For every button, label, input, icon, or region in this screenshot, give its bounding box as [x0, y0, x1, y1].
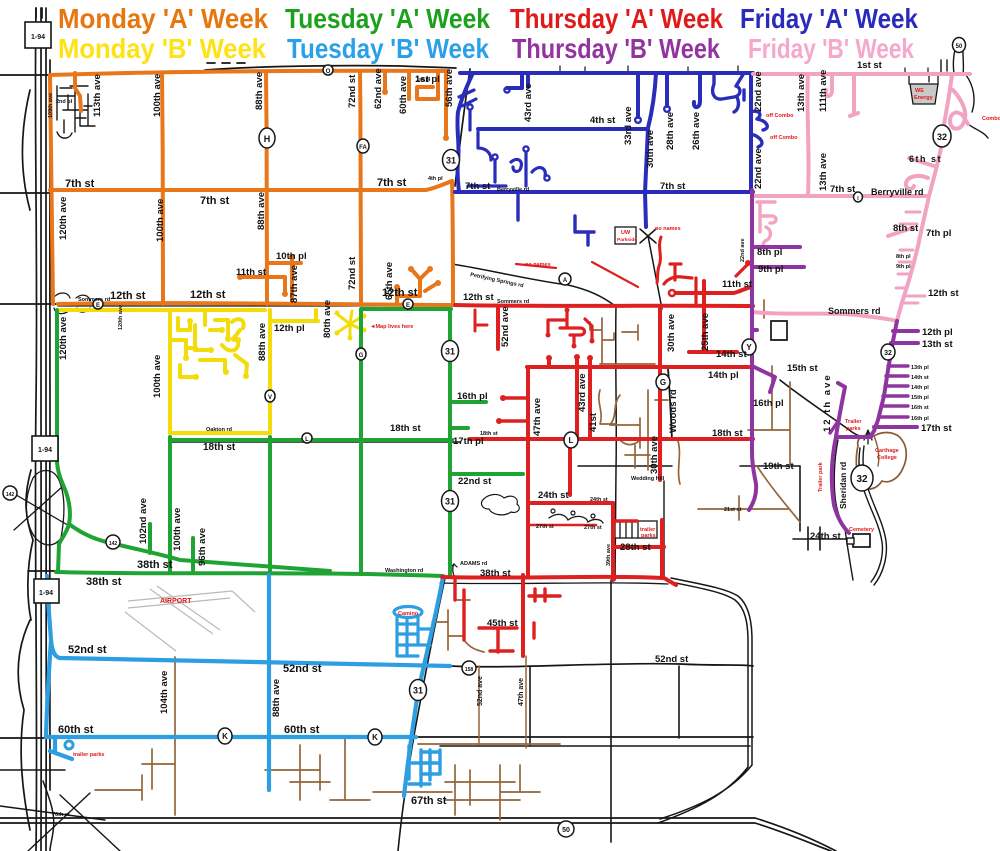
svg-text:12th st: 12th st [928, 288, 959, 299]
svg-text:100th ave: 100th ave [172, 508, 183, 551]
svg-text:47th ave: 47th ave [532, 398, 543, 436]
svg-text:24th st: 24th st [810, 531, 841, 542]
svg-text:19th st: 19th st [763, 461, 794, 472]
svg-text:39th ave: 39th ave [606, 544, 612, 566]
svg-text:no names: no names [525, 262, 551, 268]
svg-text:1st st: 1st st [857, 60, 883, 71]
svg-text:off Combo: off Combo [766, 113, 794, 119]
svg-text:120th ave: 120th ave [118, 305, 124, 330]
svg-text:142: 142 [6, 492, 15, 498]
svg-text:K: K [372, 733, 378, 742]
svg-text:Friday 'B' Week: Friday 'B' Week [748, 33, 914, 64]
svg-text:88th ave: 88th ave [254, 72, 265, 110]
svg-text:67th st: 67th st [411, 795, 447, 807]
svg-text:102nd ave: 102nd ave [138, 498, 149, 544]
svg-text:1st pl: 1st pl [416, 77, 431, 83]
svg-text:100th ave: 100th ave [152, 74, 163, 117]
svg-text:18th st: 18th st [203, 442, 236, 453]
svg-text:WE: WE [915, 88, 924, 94]
svg-text:Energy: Energy [914, 95, 934, 101]
svg-text:38th st: 38th st [137, 559, 173, 571]
svg-text:47th ave: 47th ave [518, 678, 525, 706]
svg-text:104th ave: 104th ave [159, 671, 170, 714]
svg-text:32: 32 [856, 474, 868, 485]
svg-text:13th st: 13th st [922, 339, 953, 350]
svg-text:Berryville rd: Berryville rd [871, 187, 924, 197]
svg-text:12th pl: 12th pl [274, 323, 305, 334]
svg-text:12th st: 12th st [110, 290, 146, 302]
svg-text:56th ave: 56th ave [444, 69, 455, 107]
svg-text:parks: parks [641, 533, 656, 539]
svg-text:72nd st: 72nd st [347, 256, 358, 290]
svg-text:Sommers rd: Sommers rd [828, 306, 881, 316]
svg-text:32: 32 [884, 350, 892, 357]
svg-text:Monday 'B' Week: Monday 'B' Week [58, 33, 266, 64]
svg-text:1-94: 1-94 [31, 34, 45, 41]
svg-text:2nd pl: 2nd pl [56, 99, 73, 105]
svg-text:Washington rd: Washington rd [385, 568, 423, 574]
svg-text:E: E [406, 303, 410, 309]
svg-text:L: L [305, 437, 309, 443]
svg-text:ADAMS rd: ADAMS rd [460, 561, 487, 567]
svg-text:Thursday 'B' Week: Thursday 'B' Week [512, 33, 720, 64]
svg-text:11th st: 11th st [722, 279, 753, 290]
svg-text:120th ave: 120th ave [58, 317, 69, 360]
svg-text:100th ave: 100th ave [155, 199, 166, 242]
svg-text:Oakton rd: Oakton rd [206, 427, 232, 433]
svg-text:52nd st: 52nd st [655, 654, 689, 665]
svg-text:K: K [222, 732, 228, 741]
svg-text:60th st: 60th st [58, 724, 94, 736]
svg-text:8th pl: 8th pl [757, 247, 782, 258]
svg-text:88th ave: 88th ave [257, 323, 268, 361]
svg-text:8th pl: 8th pl [896, 254, 911, 260]
svg-text:15th st: 15th st [787, 363, 818, 374]
svg-text:Sommers rd: Sommers rd [78, 297, 110, 303]
svg-text:22nd st: 22nd st [458, 476, 492, 487]
svg-text:113th ave: 113th ave [92, 74, 103, 117]
svg-text:120th ave: 120th ave [58, 197, 69, 240]
svg-text:88th ave: 88th ave [271, 679, 282, 717]
svg-text:96th ave: 96th ave [197, 528, 208, 566]
svg-text:Parkside: Parkside [617, 237, 637, 243]
svg-text:52nd ave: 52nd ave [477, 676, 484, 706]
svg-text:43rd ave: 43rd ave [523, 83, 534, 122]
svg-text:14th pl: 14th pl [708, 370, 739, 381]
svg-text:6th st: 6th st [909, 154, 942, 164]
svg-text:76th st: 76th st [52, 812, 70, 818]
svg-text:Tuesday 'B' Week: Tuesday 'B' Week [287, 33, 489, 64]
svg-text:28th st: 28th st [620, 542, 651, 553]
svg-text:158: 158 [465, 667, 474, 673]
svg-text:Camino: Camino [398, 611, 419, 617]
svg-text:16th pl: 16th pl [911, 416, 929, 422]
svg-text:4th pl: 4th pl [428, 176, 443, 182]
svg-text:43rd ave: 43rd ave [577, 373, 588, 412]
svg-text:7th st: 7th st [65, 178, 95, 190]
svg-text:7th st: 7th st [830, 184, 856, 195]
svg-text:18th st: 18th st [480, 431, 498, 437]
svg-text:17th st: 17th st [921, 423, 952, 434]
svg-text:52nd ave: 52nd ave [500, 306, 511, 347]
svg-text:G: G [359, 353, 364, 359]
svg-text:52nd st: 52nd st [68, 644, 107, 656]
svg-text:28th ave: 28th ave [665, 112, 676, 150]
svg-text:50: 50 [562, 827, 570, 834]
svg-text:17th pl: 17th pl [453, 436, 484, 447]
svg-text:33rd ave: 33rd ave [623, 106, 634, 145]
svg-text:26th ave: 26th ave [691, 112, 702, 150]
svg-text:31: 31 [445, 347, 455, 357]
svg-text:30th ave: 30th ave [666, 314, 677, 352]
svg-text:80th ave: 80th ave [322, 300, 333, 338]
svg-text:parks: parks [846, 426, 861, 432]
svg-text:12th st: 12th st [190, 289, 226, 301]
svg-text:72nd st: 72nd st [347, 74, 358, 108]
svg-text:no names: no names [655, 226, 681, 232]
svg-text:trailer parks: trailer parks [73, 752, 105, 758]
svg-text:9th pl: 9th pl [758, 264, 783, 275]
svg-text:A: A [563, 278, 568, 284]
svg-text:Thursday 'A' Week: Thursday 'A' Week [510, 3, 723, 34]
svg-text:38th st: 38th st [480, 568, 511, 579]
svg-text:O: O [326, 69, 331, 75]
svg-text:100th ave: 100th ave [152, 355, 163, 398]
svg-text:Tuesday 'A' Week: Tuesday 'A' Week [285, 3, 490, 34]
svg-text:16th pl: 16th pl [753, 398, 784, 409]
svg-text:62nd ave: 62nd ave [373, 68, 384, 109]
svg-text:24th st: 24th st [590, 497, 608, 503]
svg-text:16th pl: 16th pl [457, 391, 488, 402]
svg-text:Friday 'A' Week: Friday 'A' Week [740, 3, 918, 34]
svg-text:7th st: 7th st [200, 195, 230, 207]
svg-text:25th ave: 25th ave [700, 313, 711, 351]
svg-text:12th st: 12th st [463, 292, 494, 303]
svg-text:22nd ave: 22nd ave [740, 238, 746, 262]
svg-text:Woods rd: Woods rd [668, 389, 679, 433]
svg-text:12th pl: 12th pl [922, 327, 953, 338]
svg-text:142: 142 [109, 541, 118, 547]
svg-text:Monday 'A' Week: Monday 'A' Week [58, 3, 268, 34]
svg-text:24th st: 24th st [538, 490, 569, 501]
svg-text:Sommers rd: Sommers rd [497, 299, 529, 305]
svg-text:22nd ave: 22nd ave [753, 148, 764, 189]
svg-text:10th pl: 10th pl [276, 251, 307, 262]
svg-text:14th pl: 14th pl [911, 385, 929, 391]
svg-text:11th st: 11th st [236, 267, 267, 278]
svg-text:7th st: 7th st [377, 177, 407, 189]
svg-text:7th st: 7th st [660, 181, 686, 192]
svg-text:60th st: 60th st [284, 724, 320, 736]
svg-text:13th ave: 13th ave [796, 74, 807, 112]
svg-text:15th pl: 15th pl [911, 395, 929, 401]
svg-text:60th ave: 60th ave [398, 76, 409, 114]
svg-text:21st st: 21st st [724, 507, 742, 513]
svg-text:87th ave: 87th ave [289, 265, 300, 303]
svg-text:31: 31 [446, 156, 456, 166]
svg-text:32: 32 [937, 132, 947, 142]
svg-text:Y: Y [746, 343, 752, 352]
svg-text:65th ave: 65th ave [384, 262, 395, 300]
svg-text:13th pl: 13th pl [911, 365, 929, 371]
svg-text:7th st: 7th st [465, 181, 491, 192]
svg-text:AIRPORT: AIRPORT [160, 598, 192, 605]
svg-text:FA: FA [359, 145, 367, 151]
svg-text:Wedding Hill: Wedding Hill [631, 476, 665, 482]
svg-text:1-94: 1-94 [39, 590, 53, 597]
svg-text:18th st: 18th st [712, 428, 743, 439]
svg-text:Cemetery: Cemetery [849, 527, 875, 533]
svg-text:38th st: 38th st [86, 576, 122, 588]
svg-text:7th pl: 7th pl [926, 228, 951, 239]
svg-text:◄Map lives here: ◄Map lives here [370, 324, 413, 330]
svg-text:12 th ave: 12 th ave [822, 373, 833, 432]
svg-text:H: H [264, 134, 271, 144]
svg-text:9th pl: 9th pl [896, 264, 911, 270]
svg-text:50: 50 [956, 44, 963, 50]
svg-text:UW: UW [621, 230, 631, 236]
svg-text:88th ave: 88th ave [256, 192, 267, 230]
svg-text:30th ave: 30th ave [649, 436, 660, 474]
svg-text:22nd ave: 22nd ave [753, 71, 764, 112]
svg-text:52nd st: 52nd st [283, 663, 322, 675]
svg-text:Trailer: Trailer [845, 419, 862, 425]
svg-text:Berryville rd: Berryville rd [497, 187, 529, 193]
svg-text:13th ave: 13th ave [818, 153, 829, 191]
svg-text:41st: 41st [588, 412, 599, 432]
svg-text:Carthage: Carthage [875, 448, 899, 454]
svg-text:45th st: 45th st [487, 618, 518, 629]
svg-text:College: College [877, 455, 897, 461]
svg-text:4th st: 4th st [590, 115, 616, 126]
svg-text:G: G [660, 378, 666, 387]
svg-text:111th ave: 111th ave [818, 70, 829, 112]
svg-text:27th st: 27th st [536, 524, 554, 530]
svg-text:Combo: Combo [982, 116, 1000, 122]
svg-text:off Combo: off Combo [770, 135, 798, 141]
svg-text:14th st: 14th st [911, 375, 929, 381]
svg-text:16th st: 16th st [911, 405, 929, 411]
svg-text:27th st: 27th st [584, 525, 602, 531]
svg-text:31: 31 [413, 686, 423, 696]
svg-text:V: V [268, 395, 272, 401]
svg-text:Trailer park: Trailer park [818, 461, 824, 492]
svg-text:31: 31 [445, 497, 455, 507]
svg-text:Sheridan rd: Sheridan rd [838, 462, 848, 509]
svg-text:L: L [569, 436, 574, 445]
svg-text:14th st: 14th st [716, 349, 747, 360]
svg-text:E: E [96, 303, 100, 309]
svg-text:1-94: 1-94 [38, 447, 52, 454]
svg-text:109th ave: 109th ave [48, 93, 54, 118]
svg-text:18th st: 18th st [390, 423, 421, 434]
svg-text:8th st: 8th st [893, 223, 919, 234]
svg-text:30th ave: 30th ave [645, 130, 656, 168]
